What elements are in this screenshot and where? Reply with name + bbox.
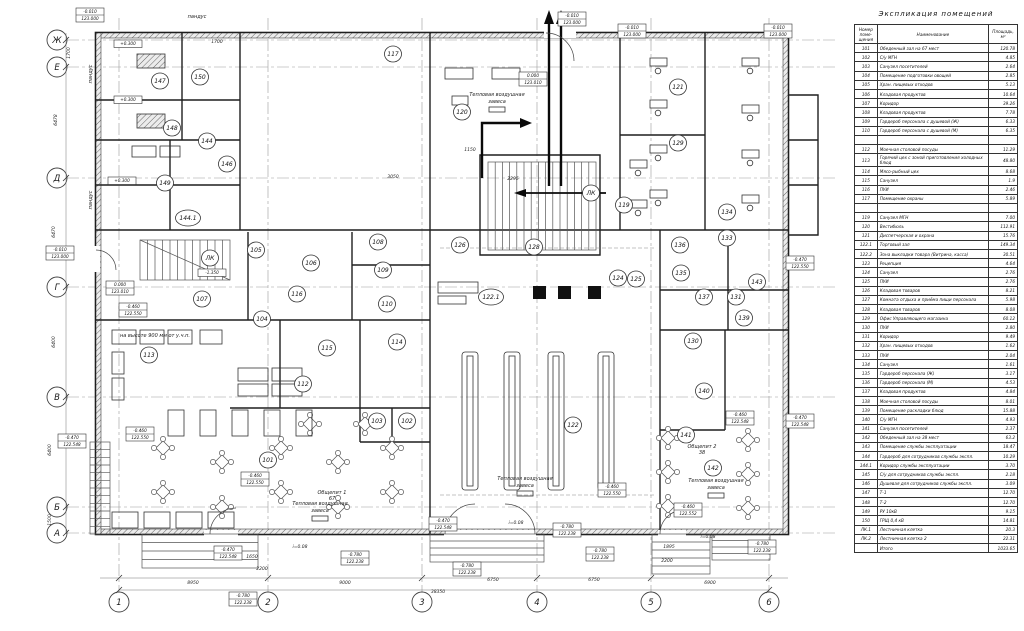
table-row: 133ПУИ2.04	[855, 351, 1018, 360]
table-row: 129Офис Управляющего магазина60.12	[855, 314, 1018, 323]
air-curtain	[312, 516, 328, 521]
table-row: 116ПУИ2.46	[855, 185, 1018, 194]
room-tag: 116	[289, 286, 306, 302]
annotation-label: Тепловая воздушная	[688, 478, 743, 484]
dimension-label: 1700	[66, 47, 72, 59]
stairs	[430, 534, 544, 562]
table-row: 115Санузел1.9	[855, 176, 1018, 185]
svg-text:106: 106	[305, 260, 317, 267]
table-row: 137Кладовая продуктов4.84	[855, 387, 1018, 396]
svg-text:122.548: 122.548	[791, 422, 809, 427]
annotation-label: Тепловая воздушная	[497, 476, 552, 482]
svg-text:122.238: 122.238	[458, 570, 476, 575]
desk	[650, 58, 667, 74]
svg-text:119: 119	[618, 202, 630, 209]
elevation-mark: -0.780122.238	[453, 562, 481, 576]
room-tag: 126	[452, 237, 469, 253]
svg-text:123.000: 123.000	[623, 32, 641, 37]
column-header: Площадь, м²	[989, 25, 1018, 44]
svg-text:144.1: 144.1	[179, 215, 196, 222]
svg-text:А: А	[53, 529, 60, 539]
elevation-mark: -0.010123.000	[618, 24, 646, 38]
annotation-label: 67	[329, 496, 336, 502]
annotation-label: завеса	[707, 485, 725, 491]
svg-text:Б: Б	[54, 503, 60, 513]
bench	[264, 410, 280, 436]
bench	[200, 410, 216, 436]
elevation-mark: -0.470122.548	[58, 434, 86, 448]
table-row: 139Помещение раскладки блюд15.88	[855, 406, 1018, 415]
svg-text:122.550: 122.550	[124, 311, 142, 316]
room-tag: 103	[369, 413, 386, 429]
column	[533, 286, 546, 299]
svg-text:122.238: 122.238	[753, 548, 771, 553]
elevation-mark: -0.780122.238	[229, 592, 257, 606]
svg-text:120: 120	[456, 109, 468, 116]
dimension-label: i=0.08	[508, 520, 523, 526]
svg-text:123.000: 123.000	[769, 32, 787, 37]
dining-table	[210, 495, 233, 518]
svg-text:149: 149	[159, 180, 171, 187]
elevation-mark: -0.780122.238	[586, 547, 614, 561]
svg-text:3: 3	[419, 598, 424, 608]
elevation-mark: -0.470122.548	[786, 414, 814, 428]
room-tag: 115	[319, 340, 336, 356]
svg-text:133: 133	[721, 235, 733, 242]
table-row: 121Диспетчерская и охрана15.76	[855, 231, 1018, 240]
room-tag: 147	[152, 73, 169, 89]
svg-text:Д: Д	[53, 174, 61, 184]
table-total-row: Итого1033.65	[855, 543, 1018, 552]
svg-text:121: 121	[672, 84, 683, 91]
svg-text:-0.460: -0.460	[248, 473, 262, 478]
table-row: 110Гардероб персонала с душевой (М)6.35	[855, 126, 1018, 135]
elevation-mark: -0.460122.550	[126, 427, 154, 441]
sofa	[492, 68, 520, 79]
elevation-mark: -0.010123.000	[76, 8, 104, 22]
dining-table	[269, 480, 292, 503]
svg-text:-0.780: -0.780	[348, 552, 362, 557]
table-row: 126Кладовая товаров8.21	[855, 286, 1018, 295]
room-tag: 146	[219, 156, 236, 172]
svg-text:Е: Е	[54, 63, 60, 73]
svg-text:-0.460: -0.460	[126, 304, 140, 309]
stairs	[652, 534, 710, 574]
room-tag: 144.1	[176, 210, 201, 226]
room-tag: 130	[685, 333, 702, 349]
table-row: 148Т-212.70	[855, 498, 1018, 507]
svg-text:140: 140	[698, 388, 710, 395]
table-row: 112Моечная столовой посуды11.29	[855, 145, 1018, 154]
dimension-label: 38350	[431, 589, 445, 595]
dining-table	[326, 450, 349, 473]
svg-text:136: 136	[674, 242, 686, 249]
svg-text:-0.470: -0.470	[221, 547, 235, 552]
elevation-mark: +0.300	[108, 177, 136, 185]
bench	[232, 410, 248, 436]
svg-text:122.548: 122.548	[219, 554, 237, 559]
svg-text:0.000: 0.000	[527, 73, 539, 78]
svg-text:5: 5	[648, 598, 653, 608]
room-tag: 133	[719, 230, 736, 246]
equipment	[132, 146, 156, 157]
svg-text:122.548: 122.548	[434, 525, 452, 530]
annotation-label: 38	[699, 450, 705, 456]
desk	[650, 100, 667, 116]
room-tag: 149	[157, 175, 174, 191]
room-tag: 150	[192, 69, 209, 85]
dining-table	[380, 436, 403, 459]
table-row: 127Комната отдыха и приёма пищи персонал…	[855, 295, 1018, 304]
dimension-label: 6400	[47, 444, 53, 456]
svg-text:122.548: 122.548	[63, 442, 81, 447]
room-tag: 140	[696, 383, 713, 399]
table-row: 102С/у МГН4.85	[855, 53, 1018, 62]
room-tag: 129	[670, 135, 687, 151]
table-row: 138Моечная столовой посуды8.01	[855, 396, 1018, 405]
dining-table	[736, 496, 759, 519]
svg-text:В: В	[54, 393, 60, 403]
bench	[168, 410, 184, 436]
svg-text:122: 122	[567, 422, 579, 429]
svg-text:-0.460: -0.460	[681, 504, 695, 509]
svg-text:+0.300: +0.300	[120, 97, 136, 102]
dimension-label: 8950	[187, 580, 199, 586]
room-tag: 104	[254, 311, 271, 327]
svg-text:0.000: 0.000	[114, 282, 126, 287]
room-tag: 105	[248, 242, 265, 258]
room-tag: 134	[719, 204, 736, 220]
room-tag: 101	[260, 452, 277, 468]
svg-text:+0.300: +0.300	[114, 178, 130, 183]
room-tag: 124	[610, 270, 627, 286]
elevation-mark: -1.350	[198, 269, 226, 277]
svg-text:-0.780: -0.780	[236, 593, 250, 598]
svg-text:-0.780: -0.780	[593, 548, 607, 553]
shelf-gondola	[598, 352, 614, 490]
room-tag: 135	[673, 265, 690, 281]
svg-text:-1.350: -1.350	[205, 270, 219, 275]
svg-text:130: 130	[687, 338, 699, 345]
schedule-title: Экспликация помещений	[852, 10, 1020, 18]
desk	[630, 160, 647, 176]
elevation-mark: -0.470122.548	[214, 546, 242, 560]
bench	[144, 512, 170, 528]
table-row: 140С/у МГН4.93	[855, 415, 1018, 424]
table-row: 113Горячий цех с зоной приготовления хол…	[855, 154, 1018, 167]
dimension-label: 3050	[387, 174, 399, 180]
svg-text:123.000: 123.000	[51, 254, 69, 259]
svg-text:113: 113	[143, 352, 155, 359]
svg-text:116: 116	[291, 291, 303, 298]
table-row: 144Гардероб для сотрудников службы экспл…	[855, 452, 1018, 461]
svg-text:-0.470: -0.470	[436, 518, 450, 523]
svg-text:-0.460: -0.460	[733, 412, 747, 417]
svg-text:129: 129	[672, 140, 684, 147]
annotation-label: пандус	[188, 14, 207, 20]
grid-axis: Е	[47, 57, 838, 77]
svg-text:-0.780: -0.780	[755, 541, 769, 546]
room-tag: 148	[164, 120, 181, 136]
annotation-label: завеса	[488, 99, 506, 105]
equipment	[238, 384, 268, 396]
dimension-label: i=0.08	[700, 534, 715, 540]
table-row	[855, 135, 1018, 144]
room-tag: 144	[199, 133, 216, 149]
svg-text:ЛК: ЛК	[205, 255, 216, 262]
room-tag: 121	[670, 79, 687, 95]
shelf-gondola	[548, 352, 564, 490]
table-row: 106Кладовая продуктов10.64	[855, 89, 1018, 98]
table-row: 145С/у для сотрудников службы экспл.2.18	[855, 470, 1018, 479]
svg-text:102: 102	[401, 418, 413, 425]
svg-text:105: 105	[250, 247, 262, 254]
svg-text:124: 124	[612, 275, 624, 282]
svg-text:+0.300: +0.300	[120, 41, 136, 46]
room-tag: 114	[389, 334, 406, 350]
table-row: 105Хран. пищевых отходов5.13	[855, 80, 1018, 89]
svg-text:-0.010: -0.010	[83, 9, 97, 14]
svg-text:4: 4	[534, 598, 539, 608]
dimension-label: 1150	[464, 147, 476, 153]
dimension-label: 6470	[51, 226, 57, 238]
svg-text:114: 114	[391, 339, 403, 346]
svg-text:150: 150	[194, 74, 206, 81]
annotation-label: пандус	[88, 190, 94, 209]
table-row: 124Санузел2.76	[855, 268, 1018, 277]
elevation-mark: 0.000123.010	[106, 281, 134, 295]
svg-text:Ж: Ж	[51, 36, 62, 46]
dimension-label: i=0.08	[292, 544, 307, 550]
svg-text:-0.780: -0.780	[560, 524, 574, 529]
table-row: 147Т-112.70	[855, 488, 1018, 497]
table-row: 114Мясо-рыбный цех8.68	[855, 167, 1018, 176]
annotation-label: завеса	[311, 508, 329, 514]
desk	[650, 145, 667, 161]
room-tag: 128	[526, 239, 543, 255]
svg-text:ЛК: ЛК	[586, 190, 597, 197]
dimension-label: 6750	[588, 577, 600, 583]
svg-text:135: 135	[675, 270, 687, 277]
checkout-counter	[438, 282, 478, 293]
room-tag: 137	[696, 289, 713, 305]
room-tag: 131	[728, 289, 745, 305]
table-row: 103Санузел посетителей2.64	[855, 62, 1018, 71]
desk	[742, 150, 759, 166]
svg-text:122.238: 122.238	[234, 600, 252, 605]
svg-text:146: 146	[221, 161, 233, 168]
room-tag: 113	[141, 347, 158, 363]
table-row: 117Помещение охраны5.89	[855, 194, 1018, 203]
room-tag: 109	[375, 262, 392, 278]
svg-text:-0.470: -0.470	[793, 415, 807, 420]
svg-text:-0.470: -0.470	[793, 257, 807, 262]
column	[558, 286, 571, 299]
desk	[742, 58, 759, 74]
dimension-label: 6750	[487, 577, 499, 583]
table-row: 122.2Зона выкладки товара (Витрина, касс…	[855, 249, 1018, 258]
schedule-header: Номер поме- щенияНаименованиеПлощадь, м²	[855, 25, 1018, 44]
table-row: 131Коридор9.49	[855, 332, 1018, 341]
room-tag: 142	[705, 460, 722, 476]
desk	[742, 195, 759, 211]
room-tag: 117	[385, 46, 402, 62]
svg-text:110: 110	[381, 301, 393, 308]
schedule-table: Номер поме- щенияНаименованиеПлощадь, м²…	[854, 24, 1018, 553]
desk	[630, 200, 647, 216]
grid-axis: 4	[527, 18, 547, 612]
annotation-label: на высоте 900 мм от у.ч.п.	[120, 333, 190, 339]
table-row: 119Санузел МГН7.00	[855, 213, 1018, 222]
elevation-mark: -0.010123.000	[558, 12, 586, 26]
svg-text:125: 125	[630, 276, 642, 283]
bench	[176, 512, 202, 528]
svg-text:122.238: 122.238	[558, 531, 576, 536]
room-tag: 110	[379, 296, 396, 312]
dimension-label: 6900	[704, 580, 716, 586]
floor-plan: ЖЕДГВБА123456 147150148144146149144.1117…	[0, 0, 845, 631]
bench	[112, 512, 138, 528]
room-tag: 119	[616, 197, 633, 213]
table-row: 109Гардероб персонала с душевой (Ж)6.33	[855, 117, 1018, 126]
room-tag: ЛК	[202, 250, 219, 266]
svg-text:139: 139	[738, 315, 750, 322]
annotation-label: Тепловая воздушная	[292, 501, 347, 507]
table-row: 120Вестибюль112.91	[855, 222, 1018, 231]
svg-text:137: 137	[698, 294, 710, 301]
elevation-mark: -0.460122.550	[119, 303, 147, 317]
svg-text:-0.010: -0.010	[565, 13, 579, 18]
svg-text:104: 104	[256, 316, 268, 323]
annotation-label: пандус	[88, 64, 94, 83]
elevation-mark: -0.780122.238	[748, 540, 776, 554]
table-row: 128Кладовая товаров8.08	[855, 305, 1018, 314]
table-row: 149РУ 10кВ9.15	[855, 507, 1018, 516]
svg-text:-0.460: -0.460	[605, 484, 619, 489]
equipment	[137, 114, 165, 128]
drawing-sheet: ЖЕДГВБА123456 147150148144146149144.1117…	[0, 0, 1024, 631]
svg-text:101: 101	[262, 457, 273, 464]
room-tag: 120	[454, 104, 471, 120]
desk	[742, 105, 759, 121]
dimension-label: 2295	[507, 176, 519, 182]
svg-text:128: 128	[528, 244, 540, 251]
svg-text:112: 112	[297, 381, 309, 388]
svg-text:-0.780: -0.780	[460, 563, 474, 568]
svg-text:2: 2	[265, 598, 270, 608]
elevation-mark: +0.300	[114, 40, 142, 48]
equipment	[137, 54, 165, 68]
svg-text:122.550: 122.550	[603, 491, 621, 496]
dining-table	[151, 480, 174, 503]
equipment	[112, 352, 124, 374]
table-row: 132Хран. пищевых отходов1.62	[855, 341, 1018, 350]
elevation-mark: +0.300	[114, 96, 142, 104]
svg-text:123.010: 123.010	[111, 289, 129, 294]
table-row: 130ПУИ2.80	[855, 323, 1018, 332]
svg-text:-0.470: -0.470	[65, 435, 79, 440]
column-header: Наименование	[877, 25, 988, 44]
table-row	[855, 204, 1018, 213]
dining-table	[298, 412, 321, 435]
air-curtain	[489, 107, 505, 112]
elevation-mark: -0.010123.000	[46, 246, 74, 260]
annotation-label: завеса	[516, 483, 534, 489]
svg-text:134: 134	[721, 209, 733, 216]
table-row: 141Санузел посетителей2.37	[855, 424, 1018, 433]
elevation-mark: -0.460122.550	[241, 472, 269, 486]
room-tag: 112	[295, 376, 312, 392]
svg-text:123.010: 123.010	[524, 80, 542, 85]
svg-text:122.238: 122.238	[591, 555, 609, 560]
dining-table	[380, 480, 403, 503]
room-tag: 139	[736, 310, 753, 326]
svg-text:-0.010: -0.010	[771, 25, 785, 30]
table-row: 150ГРЩ 0,4 кВ14.81	[855, 516, 1018, 525]
room-tag: 125	[628, 271, 645, 287]
svg-text:109: 109	[377, 267, 389, 274]
svg-text:6: 6	[766, 598, 772, 608]
elevation-mark: -0.780122.238	[341, 551, 369, 565]
svg-text:122.550: 122.550	[791, 264, 809, 269]
elevation-mark: -0.460122.548	[726, 411, 754, 425]
dimension-label: 1500	[47, 514, 53, 526]
table-row: 101Обеденный зал на 67 мест120.78	[855, 44, 1018, 53]
table-row: 144.1Коридор службы эксплуатации3.70	[855, 461, 1018, 470]
dining-table	[210, 450, 233, 473]
svg-text:117: 117	[387, 51, 399, 58]
grid-axis: 6	[759, 18, 779, 612]
svg-text:122.238: 122.238	[346, 559, 364, 564]
dimension-label: 1895	[663, 544, 675, 550]
svg-text:144: 144	[201, 138, 213, 145]
svg-text:143: 143	[751, 279, 763, 286]
elevation-mark: 0.000123.010	[519, 72, 547, 86]
table-row: 107Коридор39.26	[855, 99, 1018, 108]
room-tag: 108	[370, 234, 387, 250]
table-row: 104Помещение подготовки овощей2.85	[855, 71, 1018, 80]
room-tag: 102	[399, 413, 416, 429]
column-header: Номер поме- щения	[855, 25, 878, 44]
table-row: ЛК.2Лестничная клетка 222.31	[855, 534, 1018, 543]
equipment	[200, 330, 222, 344]
svg-text:126: 126	[454, 242, 466, 249]
dimension-label: 6400	[51, 336, 57, 348]
room-tag: 122.1	[479, 289, 504, 305]
elevation-mark: -0.470122.548	[429, 517, 457, 531]
svg-text:148: 148	[166, 125, 178, 132]
svg-text:122.550: 122.550	[131, 435, 149, 440]
stairs	[488, 162, 596, 250]
svg-text:123.000: 123.000	[563, 20, 581, 25]
room-tag: 143	[749, 274, 766, 290]
svg-text:131: 131	[730, 294, 741, 301]
grid-axis: В	[47, 387, 838, 407]
svg-text:122.548: 122.548	[731, 419, 749, 424]
room-schedule: Экспликация помещений Номер поме- щенияН…	[852, 10, 1020, 553]
room-tag: ЛК	[583, 185, 600, 201]
table-row: 142Обеденный зал на 38 мест63.2	[855, 433, 1018, 442]
dimension-label: 9000	[339, 580, 351, 586]
table-row: 125ПУИ2.76	[855, 277, 1018, 286]
svg-text:122.552: 122.552	[679, 511, 697, 516]
dimension-label: 6478	[53, 114, 59, 126]
elevation-mark: -0.470122.550	[786, 256, 814, 270]
air-curtain	[708, 493, 724, 498]
dimension-label: 1650	[246, 554, 258, 560]
table-row: 143Помещение службы эксплуатации18.47	[855, 442, 1018, 451]
room-tag: 106	[303, 255, 320, 271]
